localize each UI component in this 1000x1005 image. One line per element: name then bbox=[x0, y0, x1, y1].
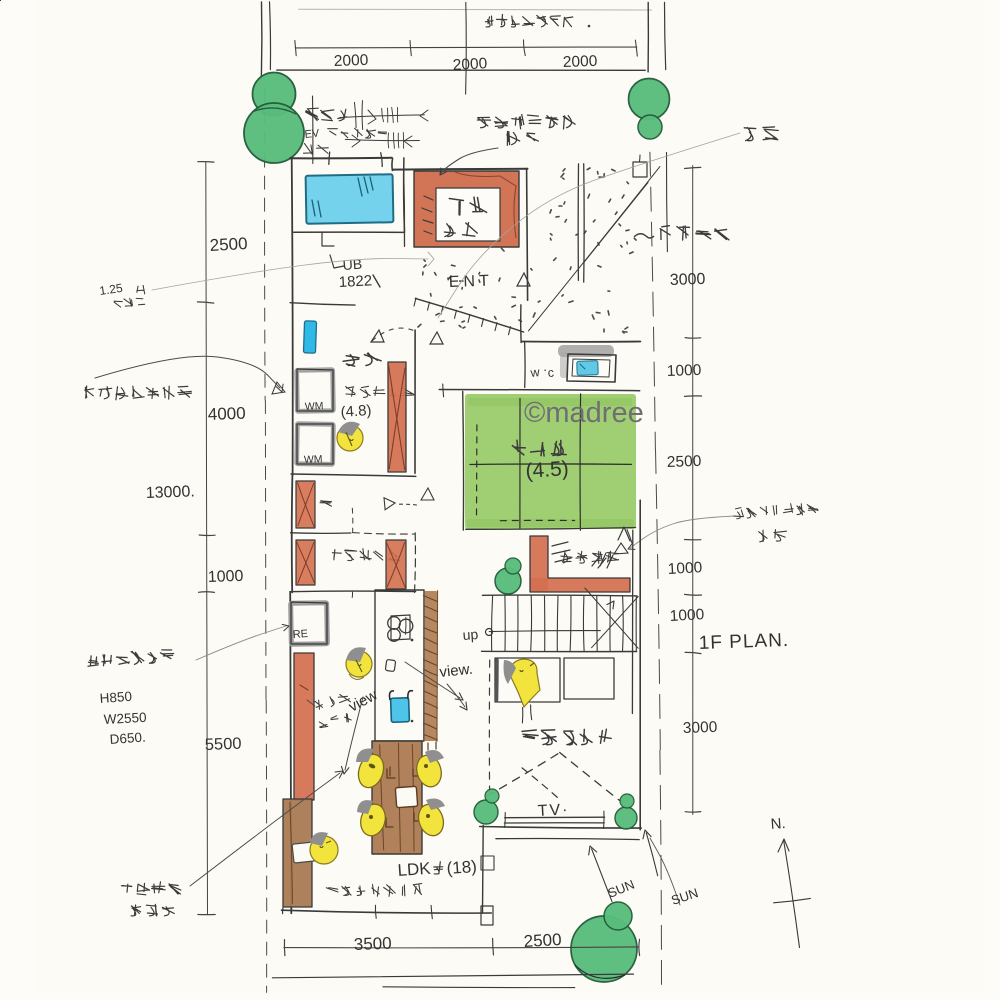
svg-text:5500: 5500 bbox=[205, 735, 242, 754]
svg-text:1822: 1822 bbox=[338, 272, 372, 291]
svg-text:2000: 2000 bbox=[563, 53, 598, 71]
svg-text:1000: 1000 bbox=[667, 362, 702, 380]
svg-text:3000: 3000 bbox=[683, 719, 718, 737]
svg-text:ENT: ENT bbox=[449, 272, 494, 291]
svg-text:up: up bbox=[462, 626, 479, 643]
svg-text:13000.: 13000. bbox=[146, 483, 196, 502]
svg-text:(18): (18) bbox=[446, 857, 477, 878]
svg-text:c: c bbox=[547, 366, 554, 380]
svg-text:2500: 2500 bbox=[523, 930, 562, 951]
svg-text:(4.5): (4.5) bbox=[525, 457, 570, 483]
svg-text:W2550: W2550 bbox=[103, 710, 147, 727]
svg-text:1000: 1000 bbox=[208, 568, 244, 586]
svg-text:view.: view. bbox=[439, 661, 474, 681]
svg-text:1000: 1000 bbox=[667, 559, 703, 578]
svg-text:TV·: TV· bbox=[537, 801, 570, 820]
svg-text:1F PLAN.: 1F PLAN. bbox=[698, 630, 789, 654]
svg-text:WM: WM bbox=[305, 400, 324, 413]
svg-text:2500: 2500 bbox=[667, 453, 702, 471]
svg-text:UB: UB bbox=[342, 256, 363, 273]
svg-text:D650.: D650. bbox=[109, 730, 146, 747]
svg-text:(4.8): (4.8) bbox=[340, 402, 372, 421]
svg-text:1000: 1000 bbox=[669, 606, 705, 625]
svg-text:LDK: LDK bbox=[397, 859, 432, 880]
svg-text:EV: EV bbox=[304, 127, 321, 141]
svg-text:4000: 4000 bbox=[207, 404, 245, 424]
svg-text:3000: 3000 bbox=[670, 271, 706, 289]
svg-text:H850: H850 bbox=[99, 689, 132, 706]
svg-text:2500: 2500 bbox=[209, 234, 248, 255]
svg-text:2000: 2000 bbox=[452, 55, 488, 74]
svg-text:N.: N. bbox=[770, 815, 786, 833]
svg-text:©madree: ©madree bbox=[524, 397, 644, 429]
svg-text:WM: WM bbox=[304, 453, 323, 466]
svg-text:2000: 2000 bbox=[334, 52, 369, 70]
svg-text:3500: 3500 bbox=[353, 934, 391, 954]
svg-text:RE: RE bbox=[292, 628, 308, 641]
